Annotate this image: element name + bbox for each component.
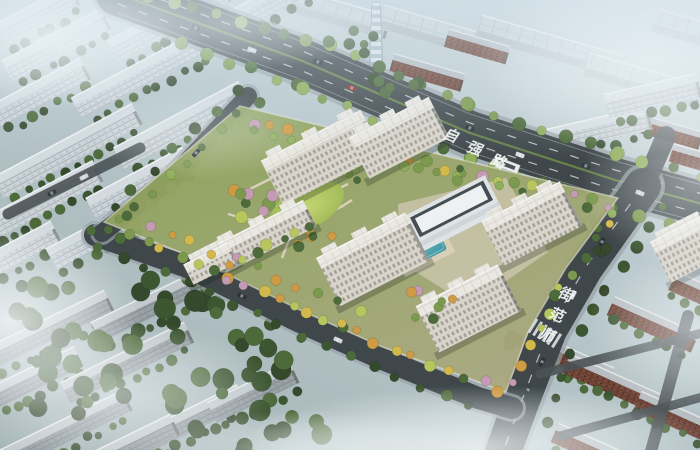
tree bbox=[209, 265, 220, 276]
tree bbox=[516, 360, 527, 371]
tree bbox=[367, 338, 378, 349]
tree bbox=[353, 326, 361, 334]
tree bbox=[392, 346, 402, 356]
tree bbox=[115, 216, 123, 224]
tree bbox=[452, 176, 462, 186]
tree bbox=[274, 351, 293, 370]
tree bbox=[210, 306, 223, 319]
tree bbox=[148, 190, 156, 198]
tree bbox=[161, 267, 171, 277]
tree bbox=[291, 284, 299, 292]
tree bbox=[55, 204, 65, 214]
tree bbox=[207, 250, 216, 259]
tree bbox=[169, 231, 176, 238]
tree bbox=[194, 259, 204, 269]
tree bbox=[145, 237, 154, 246]
tree bbox=[411, 314, 419, 322]
tree bbox=[235, 188, 246, 199]
tree bbox=[225, 261, 233, 269]
tree bbox=[568, 271, 578, 281]
tree bbox=[334, 297, 342, 305]
tree bbox=[509, 379, 516, 386]
tree bbox=[281, 235, 288, 242]
tree bbox=[104, 225, 113, 234]
tree bbox=[43, 211, 52, 220]
tree bbox=[313, 288, 323, 298]
tree bbox=[238, 256, 246, 264]
tree bbox=[456, 165, 463, 172]
tree bbox=[271, 275, 282, 286]
tree bbox=[570, 190, 578, 198]
tree bbox=[370, 361, 381, 372]
tree bbox=[271, 319, 281, 329]
tree bbox=[576, 324, 588, 336]
tree bbox=[298, 333, 307, 342]
atmospheric-haze bbox=[0, 0, 700, 160]
tree bbox=[290, 228, 299, 237]
tree bbox=[413, 163, 423, 173]
tree bbox=[557, 373, 566, 382]
tree bbox=[438, 297, 446, 305]
tree bbox=[260, 239, 272, 251]
tree bbox=[279, 396, 288, 405]
tree bbox=[154, 244, 163, 253]
tree bbox=[290, 302, 299, 311]
tree bbox=[301, 307, 312, 318]
tree bbox=[406, 351, 414, 359]
tree bbox=[481, 376, 491, 386]
tree bbox=[390, 373, 399, 382]
tree bbox=[346, 351, 356, 361]
tree bbox=[305, 222, 314, 231]
tree bbox=[254, 262, 262, 270]
tree bbox=[322, 340, 332, 350]
tree bbox=[125, 184, 136, 195]
tree bbox=[260, 339, 275, 354]
tree bbox=[592, 234, 600, 242]
aerial-rendering: 自强路 师范街 bbox=[0, 0, 700, 450]
tree bbox=[355, 306, 366, 317]
tree bbox=[67, 197, 76, 206]
tree bbox=[122, 211, 132, 221]
tree bbox=[124, 229, 135, 240]
tree bbox=[205, 287, 214, 296]
tree bbox=[26, 186, 33, 193]
tree bbox=[318, 316, 328, 326]
tree bbox=[565, 349, 575, 359]
tree bbox=[593, 246, 601, 254]
tree bbox=[406, 287, 416, 297]
tree bbox=[581, 253, 591, 263]
tree bbox=[440, 166, 451, 177]
tree bbox=[424, 360, 436, 372]
tree bbox=[259, 286, 271, 298]
tree bbox=[141, 271, 160, 290]
tree bbox=[154, 298, 176, 320]
tree bbox=[353, 176, 360, 183]
tree bbox=[184, 235, 194, 245]
tree bbox=[258, 206, 268, 216]
tree bbox=[146, 222, 156, 232]
tree bbox=[276, 294, 285, 303]
tree bbox=[338, 319, 347, 328]
tree bbox=[293, 387, 303, 397]
tree bbox=[222, 276, 230, 284]
tree bbox=[235, 211, 248, 224]
tree bbox=[459, 374, 468, 383]
tree bbox=[448, 295, 457, 304]
tree bbox=[227, 300, 238, 311]
tree bbox=[184, 290, 206, 312]
tree bbox=[254, 309, 262, 317]
tree bbox=[130, 202, 139, 211]
tree bbox=[118, 252, 130, 264]
tree bbox=[177, 252, 188, 263]
tree bbox=[433, 168, 441, 176]
tree bbox=[328, 232, 336, 240]
tree bbox=[527, 180, 538, 191]
tree bbox=[139, 264, 148, 273]
tree bbox=[86, 226, 96, 236]
tree bbox=[525, 340, 536, 351]
tree bbox=[444, 366, 453, 375]
tree bbox=[509, 177, 520, 188]
tree bbox=[495, 181, 504, 190]
aerial-rendering-canvas: 自强路 师范街 bbox=[0, 0, 700, 450]
tree bbox=[239, 281, 248, 290]
tree bbox=[428, 314, 438, 324]
